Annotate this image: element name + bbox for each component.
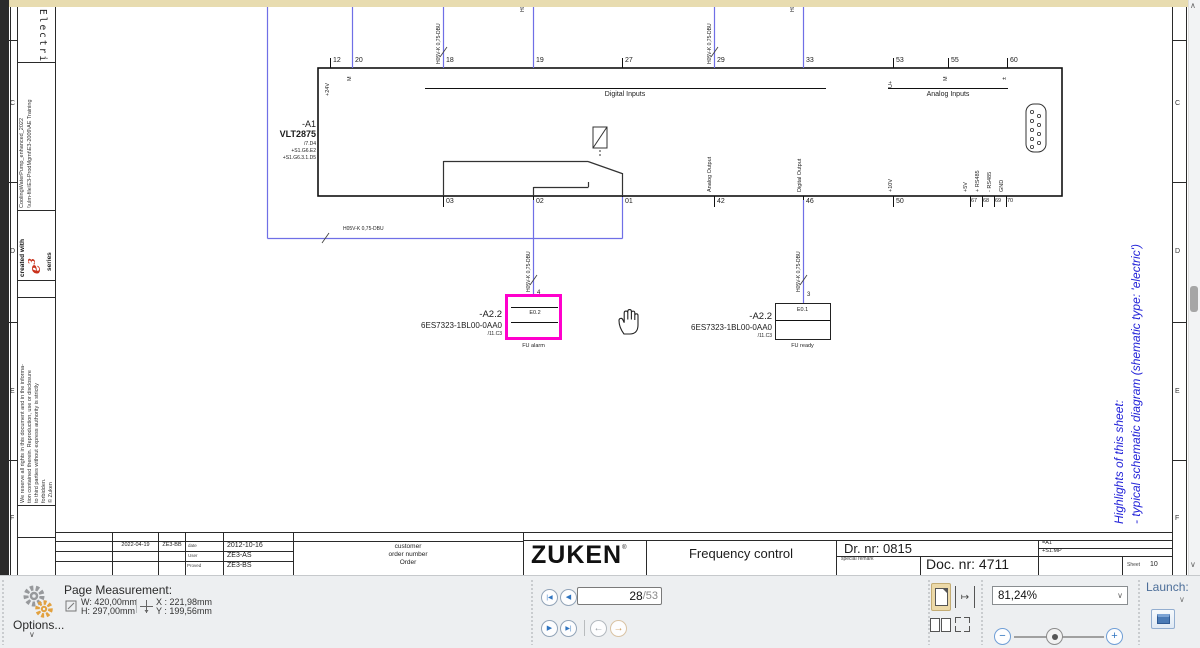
last-page-button[interactable]: ▶| — [560, 620, 577, 637]
e3-viewer-window: ∧ ∨ C D E F C D E F Electric CoolingWate… — [0, 0, 1200, 648]
zoom-combo-chevron-icon: ∨ — [1117, 591, 1127, 600]
single-page-view-button[interactable] — [931, 583, 951, 611]
page-size-icon — [64, 599, 78, 613]
page-number-input[interactable]: 28/53 — [577, 587, 662, 605]
workspace-top-edge — [9, 0, 1188, 7]
options-chevron-icon[interactable]: ∨ — [29, 631, 35, 640]
toolbar-grip[interactable] — [1137, 579, 1141, 645]
first-page-button[interactable]: |◀ — [541, 589, 558, 606]
launch-label: Launch: — [1146, 581, 1189, 594]
scrollbar-up-icon[interactable]: ∧ — [1190, 2, 1196, 11]
fit-all-button[interactable] — [955, 617, 970, 632]
zoom-in-button[interactable]: + — [1106, 628, 1123, 645]
plc-input-alarm-selected[interactable] — [505, 294, 562, 340]
zoom-level-combobox[interactable]: 81,24% ∨ — [992, 586, 1128, 605]
page-total-value: /53 — [643, 590, 658, 602]
page-icon — [935, 588, 948, 606]
forward-button[interactable]: → — [610, 620, 627, 637]
toolbar-grip[interactable] — [980, 579, 984, 645]
workspace-left-edge — [0, 0, 9, 575]
zoom-out-button[interactable]: − — [994, 628, 1011, 645]
toolbar-grip[interactable] — [530, 579, 534, 645]
hand-cursor — [616, 306, 642, 336]
launch-viewer-button[interactable] — [1151, 609, 1175, 629]
toolbar-grip[interactable] — [1, 579, 5, 645]
cursor-y-value: Y : 199,56mm — [156, 607, 212, 617]
scrollbar-down-icon[interactable]: ∨ — [1190, 561, 1196, 570]
plc-input-ready[interactable] — [775, 303, 831, 340]
viewer-window-icon — [1157, 614, 1170, 624]
back-button[interactable]: ← — [590, 620, 607, 637]
crosshair-icon — [140, 600, 153, 613]
options-button[interactable]: Options... — [13, 619, 64, 632]
zoom-level-value: 81,24% — [993, 590, 1117, 602]
page-current-value: 28 — [629, 589, 642, 603]
page-height-value: H: 297,00mm — [81, 607, 135, 617]
launch-chevron-icon[interactable]: ∨ — [1179, 596, 1185, 605]
page-measurement-title: Page Measurement: — [64, 584, 172, 597]
next-page-button[interactable]: ▶ — [541, 620, 558, 637]
scrollbar-thumb[interactable] — [1190, 286, 1198, 312]
zoom-slider-knob[interactable] — [1046, 628, 1063, 645]
previous-page-button[interactable]: ◀ — [560, 589, 577, 606]
two-page-view-button[interactable] — [930, 618, 951, 632]
fit-width-button[interactable]: ↦ — [955, 586, 975, 608]
schematic-linework — [0, 0, 1200, 648]
